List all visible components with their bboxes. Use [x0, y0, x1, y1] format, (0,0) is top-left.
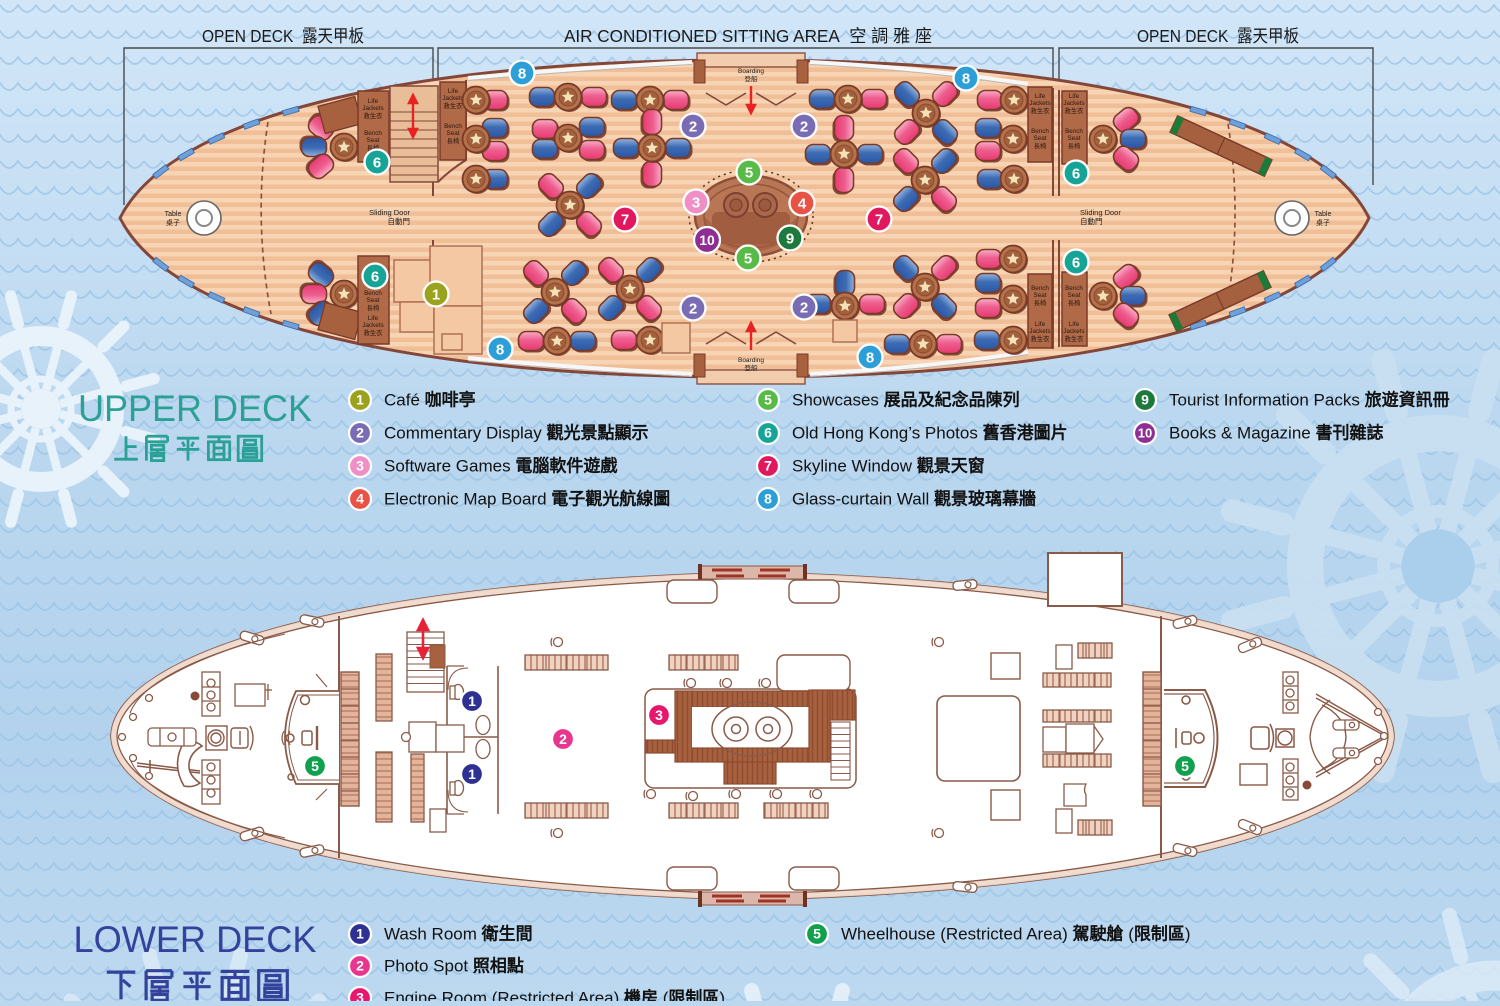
svg-text:自動門: 自動門	[1080, 216, 1103, 226]
svg-text:Books & Magazine 書刊雜誌: Books & Magazine 書刊雜誌	[1169, 423, 1383, 443]
svg-text:桌子: 桌子	[166, 218, 180, 227]
svg-text:長椅: 長椅	[1068, 141, 1081, 150]
svg-text:2: 2	[356, 958, 364, 974]
svg-text:5: 5	[813, 926, 821, 942]
svg-text:Skyline Window 觀景天窗: Skyline Window 觀景天窗	[792, 456, 985, 476]
svg-text:Jackets: Jackets	[442, 95, 463, 102]
svg-text:2: 2	[689, 300, 697, 317]
svg-text:長椅: 長椅	[447, 136, 460, 145]
svg-text:救生衣: 救生衣	[1031, 106, 1051, 115]
svg-text:3: 3	[356, 990, 364, 1001]
svg-text:2: 2	[800, 118, 808, 135]
svg-text:6: 6	[764, 425, 772, 441]
svg-text:Seat: Seat	[367, 297, 380, 304]
svg-text:救生衣: 救生衣	[1031, 334, 1051, 343]
svg-text:UPPER DECK: UPPER DECK	[78, 388, 312, 429]
svg-text:7: 7	[764, 458, 772, 474]
svg-text:登船: 登船	[745, 74, 759, 83]
svg-text:Seat: Seat	[1068, 292, 1081, 299]
svg-text:Sliding Door: Sliding Door	[1080, 208, 1121, 217]
svg-text:1: 1	[468, 766, 476, 782]
svg-text:5: 5	[1181, 758, 1189, 774]
svg-text:2: 2	[559, 731, 567, 747]
svg-text:3: 3	[655, 707, 663, 723]
svg-text:6: 6	[371, 268, 379, 285]
svg-text:Jackets: Jackets	[1063, 328, 1084, 335]
svg-text:桌子: 桌子	[1316, 218, 1330, 227]
svg-text:Old Hong Kong’s Photos 舊香港圖片: Old Hong Kong’s Photos 舊香港圖片	[792, 423, 1068, 443]
svg-text:Glass-curtain Wall 觀景玻璃幕牆: Glass-curtain Wall 觀景玻璃幕牆	[792, 489, 1036, 509]
svg-text:2: 2	[356, 425, 364, 441]
svg-text:LOWER DECK: LOWER DECK	[74, 919, 317, 960]
svg-text:Seat: Seat	[1034, 135, 1047, 142]
svg-text:Bench: Bench	[444, 123, 462, 130]
svg-text:Bench: Bench	[1065, 128, 1083, 135]
svg-text:8: 8	[764, 491, 772, 507]
svg-text:Tourist Information Packs 旅遊資訊: Tourist Information Packs 旅遊資訊冊	[1169, 390, 1450, 410]
svg-text:Bench: Bench	[1031, 128, 1049, 135]
svg-text:6: 6	[1072, 165, 1080, 182]
svg-text:Jackets: Jackets	[362, 105, 383, 112]
svg-text:長椅: 長椅	[1068, 298, 1081, 307]
svg-text:7: 7	[875, 211, 883, 228]
svg-text:Seat: Seat	[367, 137, 380, 144]
svg-text:Photo Spot 照相點: Photo Spot 照相點	[384, 956, 524, 976]
svg-text:3: 3	[356, 458, 364, 474]
svg-text:Seat: Seat	[447, 130, 460, 137]
svg-text:Café 咖啡亭: Café 咖啡亭	[384, 390, 476, 410]
svg-text:登船: 登船	[745, 363, 759, 372]
svg-text:Electronic Map Board 電子觀光航線圖: Electronic Map Board 電子觀光航線圖	[384, 489, 670, 509]
svg-text:救生衣: 救生衣	[364, 328, 384, 337]
svg-text:4: 4	[798, 195, 807, 212]
svg-text:3: 3	[692, 194, 700, 211]
svg-text:Life: Life	[1069, 93, 1080, 100]
svg-text:自動門: 自動門	[388, 216, 411, 226]
svg-text:9: 9	[1141, 392, 1149, 408]
svg-text:Life: Life	[448, 88, 459, 95]
svg-text:9: 9	[786, 230, 794, 247]
svg-text:Life: Life	[1035, 93, 1046, 100]
svg-text:Life: Life	[368, 315, 379, 322]
svg-text:8: 8	[496, 341, 504, 358]
svg-text:Boarding: Boarding	[738, 357, 764, 364]
svg-text:2: 2	[689, 118, 697, 135]
svg-text:5: 5	[744, 250, 752, 267]
svg-text:1: 1	[356, 392, 364, 408]
svg-text:Bench: Bench	[1065, 285, 1083, 292]
svg-text:1: 1	[468, 693, 476, 709]
svg-text:AIR CONDITIONED SITTING AREA: AIR CONDITIONED SITTING AREA 空 調 雅 座	[564, 26, 932, 46]
svg-text:Commentary Display 觀光景點顯示: Commentary Display 觀光景點顯示	[384, 423, 649, 443]
svg-text:10: 10	[699, 232, 715, 248]
svg-text:Seat: Seat	[1068, 135, 1081, 142]
svg-text:Boarding: Boarding	[738, 68, 764, 75]
svg-text:長椅: 長椅	[1034, 141, 1047, 150]
svg-text:10: 10	[1138, 426, 1152, 441]
svg-text:Table: Table	[1315, 211, 1332, 218]
svg-text:救生衣: 救生衣	[1065, 334, 1085, 343]
svg-text:Bench: Bench	[364, 130, 382, 137]
svg-text:Wheelhouse (Restricted Area) 駕: Wheelhouse (Restricted Area) 駕駛艙 (限制區)	[841, 924, 1191, 944]
svg-text:救生衣: 救生衣	[444, 101, 464, 110]
svg-text:OPEN DECK 露天甲板: OPEN DECK 露天甲板	[202, 26, 364, 46]
svg-text:Table: Table	[165, 211, 182, 218]
svg-text:7: 7	[621, 211, 629, 228]
svg-text:6: 6	[1072, 254, 1080, 271]
svg-text:Jackets: Jackets	[1063, 100, 1084, 107]
svg-text:Life: Life	[1035, 321, 1046, 328]
svg-text:5: 5	[311, 758, 319, 774]
svg-text:Bench: Bench	[364, 290, 382, 297]
svg-text:Jackets: Jackets	[1029, 100, 1050, 107]
svg-text:5: 5	[764, 392, 772, 408]
svg-text:長椅: 長椅	[367, 303, 380, 312]
svg-text:長椅: 長椅	[1034, 298, 1047, 307]
svg-text:8: 8	[518, 65, 526, 82]
svg-text:Software Games 電腦軟件遊戲: Software Games 電腦軟件遊戲	[384, 456, 618, 476]
svg-text:6: 6	[373, 154, 381, 171]
svg-text:Bench: Bench	[1031, 285, 1049, 292]
svg-text:Seat: Seat	[1034, 292, 1047, 299]
svg-text:4: 4	[356, 491, 364, 507]
svg-text:1: 1	[356, 926, 364, 942]
svg-text:OPEN DECK 露天甲板: OPEN DECK 露天甲板	[1137, 26, 1299, 46]
svg-text:8: 8	[866, 349, 874, 366]
svg-text:5: 5	[745, 164, 753, 181]
svg-text:8: 8	[962, 70, 970, 87]
svg-text:Jackets: Jackets	[1029, 328, 1050, 335]
svg-text:Showcases 展品及紀念品陳列: Showcases 展品及紀念品陳列	[792, 390, 1020, 410]
svg-text:Life: Life	[368, 98, 379, 105]
svg-text:1: 1	[432, 286, 440, 303]
svg-text:Jackets: Jackets	[362, 322, 383, 329]
svg-text:救生衣: 救生衣	[1065, 106, 1085, 115]
svg-text:Engine Room (Restricted Area): Engine Room (Restricted Area) 機房 (限制區)	[384, 988, 725, 1002]
svg-text:救生衣: 救生衣	[364, 111, 384, 120]
svg-text:Wash Room 衛生間: Wash Room 衛生間	[384, 924, 533, 944]
svg-text:Sliding Door: Sliding Door	[369, 208, 410, 217]
svg-text:2: 2	[800, 299, 808, 316]
svg-text:Life: Life	[1069, 321, 1080, 328]
